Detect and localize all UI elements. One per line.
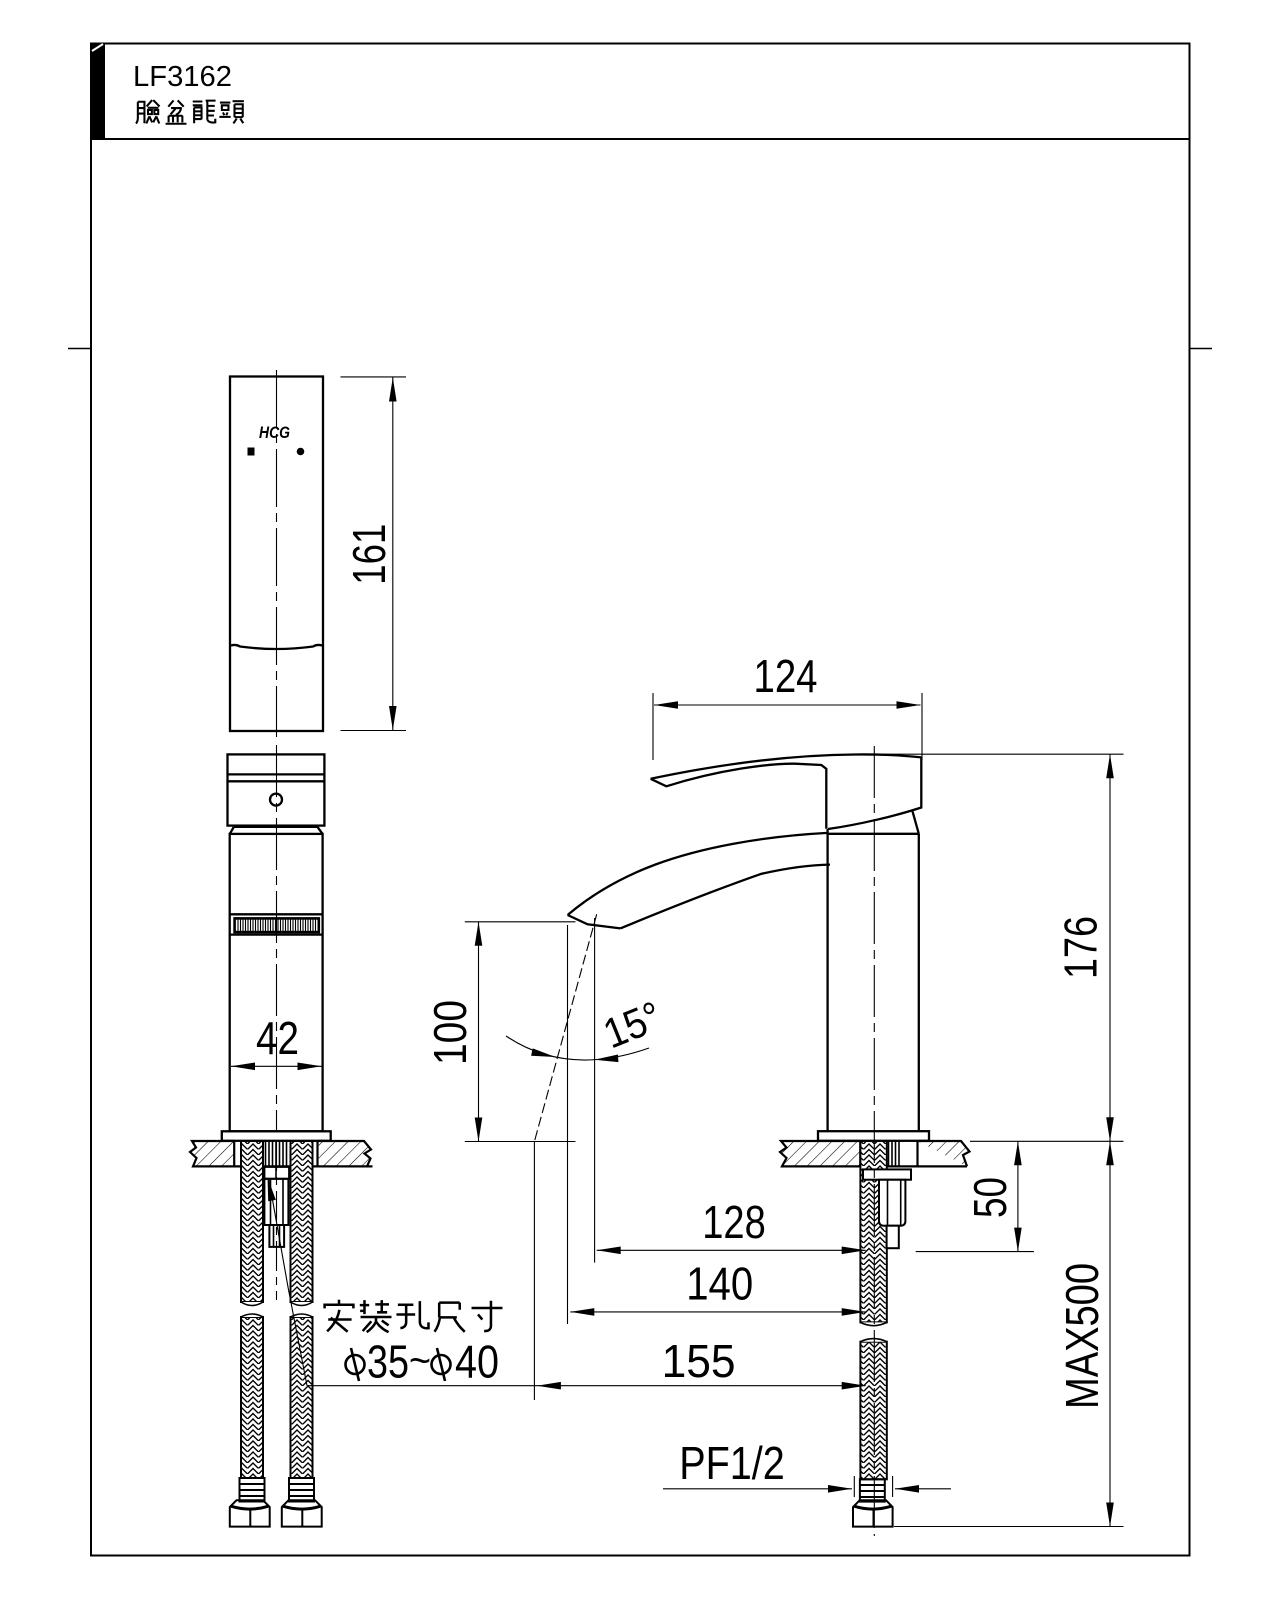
svg-text:161: 161 — [343, 524, 395, 585]
svg-text:155: 155 — [662, 1335, 736, 1387]
svg-text:MAX500: MAX500 — [1056, 1263, 1108, 1409]
svg-text:35: 35 — [367, 1336, 409, 1388]
svg-text:50: 50 — [964, 1177, 1016, 1218]
svg-text:HCG: HCG — [259, 423, 290, 442]
svg-text:LF3162: LF3162 — [133, 61, 232, 93]
svg-text:~: ~ — [409, 1339, 431, 1383]
svg-text:128: 128 — [702, 1196, 766, 1248]
svg-text:140: 140 — [686, 1258, 753, 1310]
svg-text:100: 100 — [424, 1000, 476, 1065]
svg-text:PF1/2: PF1/2 — [679, 1437, 785, 1489]
svg-text:124: 124 — [754, 650, 818, 702]
svg-text:42: 42 — [256, 1012, 299, 1064]
svg-text:176: 176 — [1055, 916, 1107, 979]
svg-text:40: 40 — [455, 1336, 499, 1388]
